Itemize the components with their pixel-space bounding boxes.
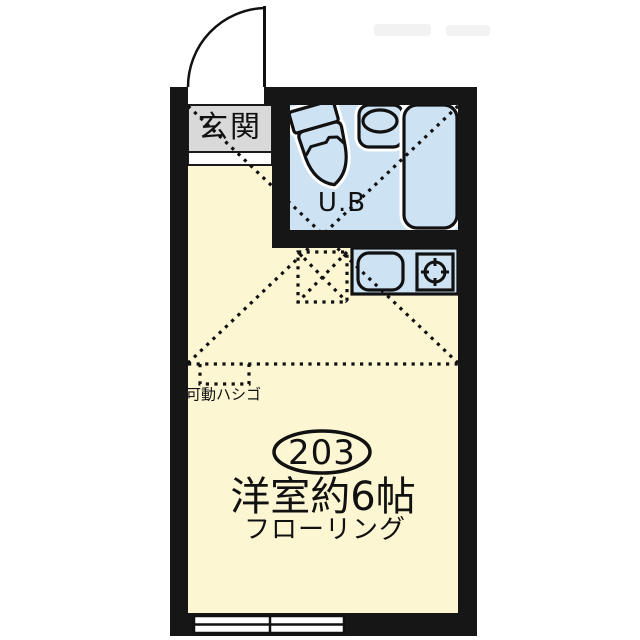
- floor-plan: 玄関 U.B 可動ハシゴ 203 洋室約6帖 フローリング: [0, 0, 640, 640]
- ladder-label: 可動ハシゴ: [186, 388, 261, 403]
- room-name-label: 洋室約6帖: [230, 477, 415, 517]
- room-number: 203: [288, 436, 356, 470]
- kitchen-sink-icon: [358, 253, 403, 290]
- unit-bath-label: U.B: [318, 190, 366, 216]
- entrance-label: 玄関: [198, 113, 262, 143]
- sliding-window-icon: [194, 616, 344, 633]
- flooring-label: フローリング: [244, 517, 406, 543]
- stove-burner-icon: [417, 254, 453, 290]
- bathtub-icon: [404, 105, 457, 228]
- kitchen-counter: [352, 248, 458, 294]
- washbasin-icon: [359, 105, 403, 147]
